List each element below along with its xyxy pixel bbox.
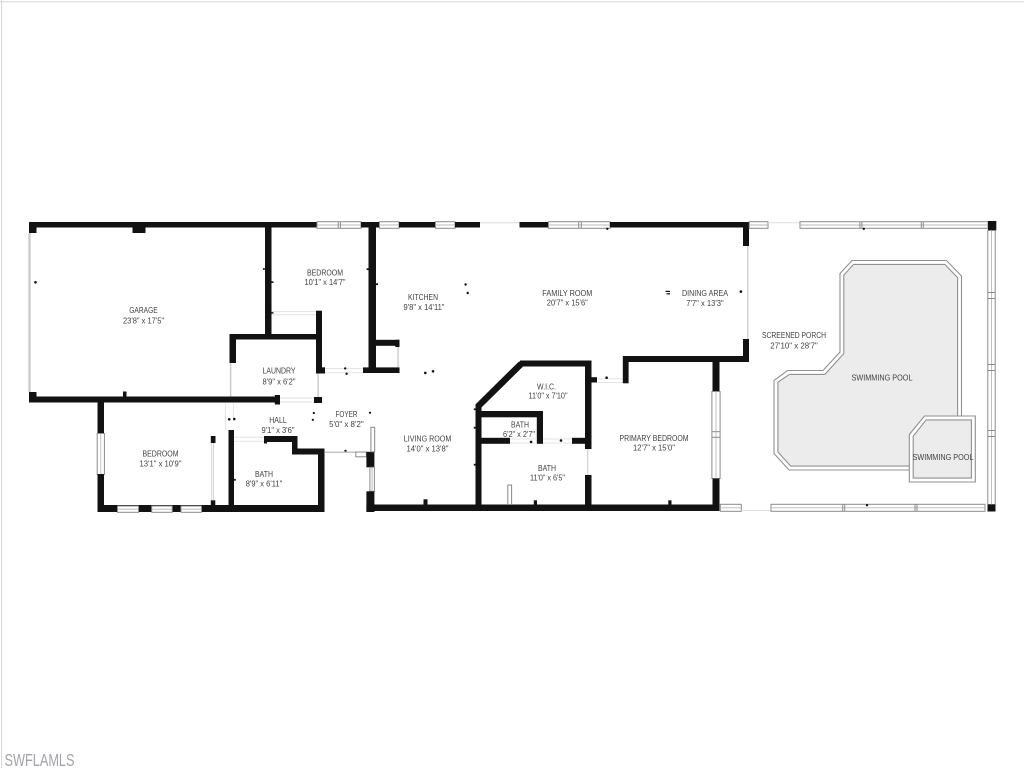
svg-text:6'2" x 2'7": 6'2" x 2'7" — [503, 430, 535, 439]
svg-text:11'0" x 6'5": 11'0" x 6'5" — [530, 474, 565, 483]
svg-text:27'10" x 28'7": 27'10" x 28'7" — [770, 342, 818, 351]
svg-text:20'7" x 15'6": 20'7" x 15'6" — [547, 298, 588, 307]
svg-text:8'9" x 6'2": 8'9" x 6'2" — [263, 378, 296, 387]
svg-text:SWIMMING POOL: SWIMMING POOL — [913, 453, 974, 462]
svg-text:BATH: BATH — [511, 421, 529, 430]
svg-text:LAUNDRY: LAUNDRY — [263, 367, 296, 376]
svg-text:9'8" x 14'11": 9'8" x 14'11" — [404, 303, 445, 312]
svg-text:23'8" x 17'5": 23'8" x 17'5" — [123, 316, 164, 325]
svg-text:W.I.C.: W.I.C. — [537, 383, 556, 392]
svg-text:11'0" x 7'10": 11'0" x 7'10" — [529, 392, 568, 401]
svg-text:PRIMARY BEDROOM: PRIMARY BEDROOM — [620, 434, 689, 443]
svg-text:BATH: BATH — [255, 470, 273, 479]
svg-text:10'1" x 14'7": 10'1" x 14'7" — [305, 278, 346, 287]
svg-text:7'7" x 13'3": 7'7" x 13'3" — [686, 299, 724, 308]
svg-text:BATH: BATH — [538, 464, 556, 473]
svg-text:FOYER: FOYER — [336, 410, 358, 419]
svg-text:SWFLAMLS: SWFLAMLS — [5, 750, 75, 768]
svg-text:FAMILY ROOM: FAMILY ROOM — [542, 289, 592, 298]
svg-text:13'1" x 10'9": 13'1" x 10'9" — [140, 460, 182, 469]
svg-text:12'7" x 15'0": 12'7" x 15'0" — [633, 444, 675, 453]
svg-text:HALL: HALL — [269, 416, 287, 425]
svg-text:5'0" x 8'2": 5'0" x 8'2" — [329, 420, 364, 429]
svg-text:GARAGE: GARAGE — [129, 306, 158, 315]
svg-text:LIVING ROOM: LIVING ROOM — [404, 435, 452, 444]
svg-text:KITCHEN: KITCHEN — [408, 293, 438, 302]
svg-text:9'1" x 3'6": 9'1" x 3'6" — [262, 426, 295, 435]
svg-text:8'9" x 6'11": 8'9" x 6'11" — [246, 480, 283, 489]
svg-text:SCREENED PORCH: SCREENED PORCH — [762, 331, 826, 340]
svg-text:SWIMMING POOL: SWIMMING POOL — [852, 374, 913, 383]
svg-text:BEDROOM: BEDROOM — [143, 450, 179, 459]
svg-text:14'0" x 13'8": 14'0" x 13'8" — [407, 445, 449, 454]
svg-text:BEDROOM: BEDROOM — [307, 268, 343, 277]
svg-text:DINING AREA: DINING AREA — [682, 289, 728, 298]
